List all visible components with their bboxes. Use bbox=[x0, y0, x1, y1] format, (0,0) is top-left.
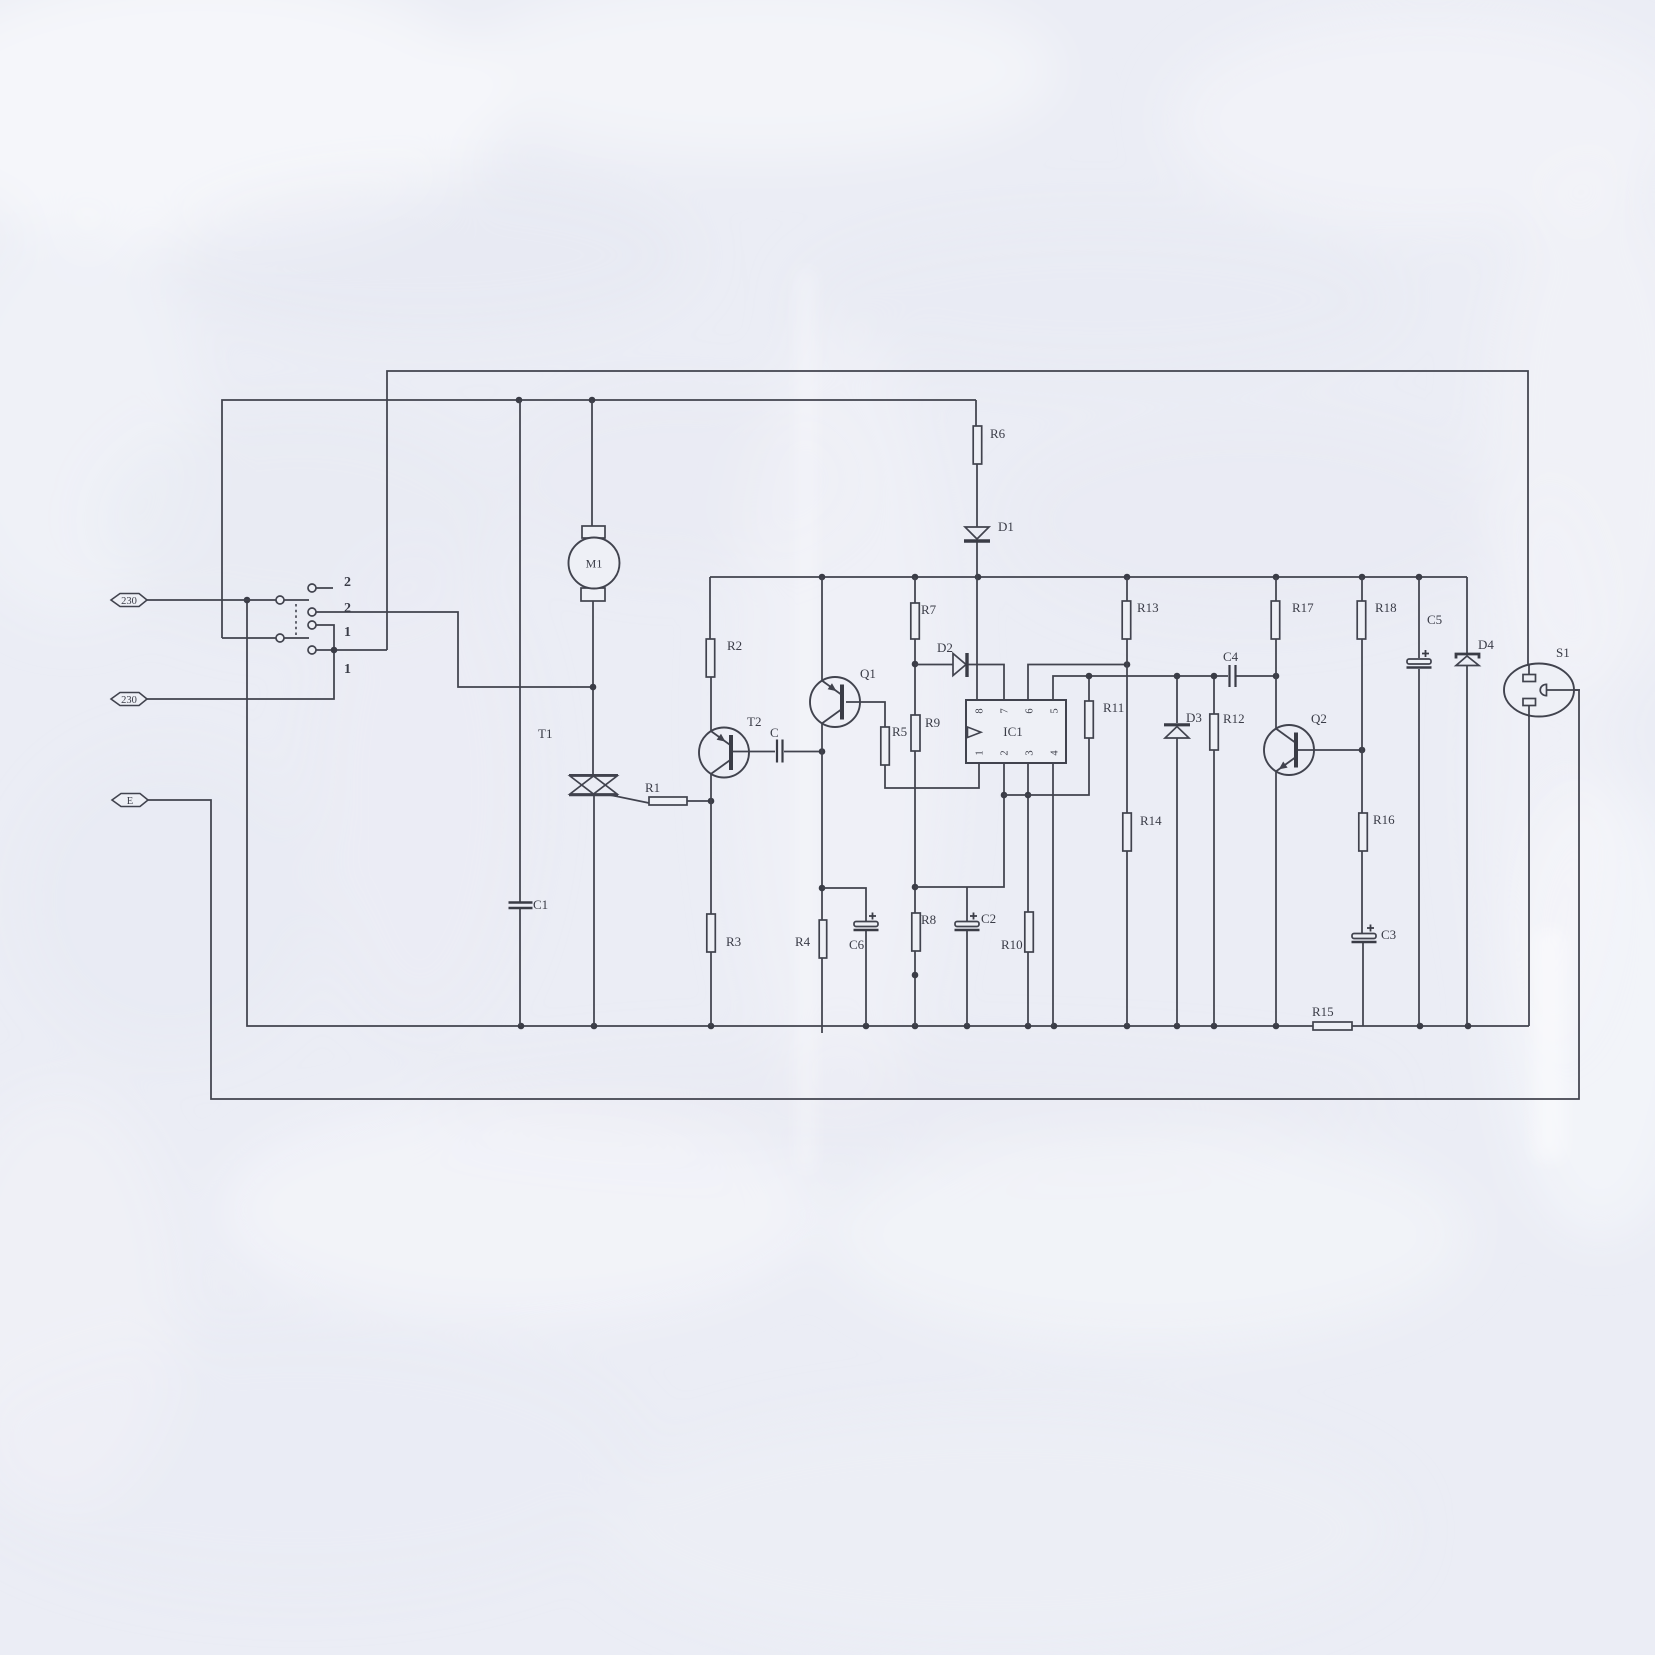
svg-text:7: 7 bbox=[1000, 708, 1011, 713]
svg-text:T2: T2 bbox=[747, 714, 761, 729]
svg-text:C4: C4 bbox=[1223, 649, 1239, 664]
svg-text:R7: R7 bbox=[921, 602, 937, 617]
svg-text:1: 1 bbox=[975, 750, 986, 755]
svg-text:230: 230 bbox=[121, 695, 137, 706]
svg-text:R18: R18 bbox=[1375, 600, 1397, 615]
svg-text:1: 1 bbox=[344, 662, 351, 677]
svg-text:E: E bbox=[127, 796, 133, 807]
svg-text:R8: R8 bbox=[921, 912, 936, 927]
svg-text:R13: R13 bbox=[1137, 600, 1159, 615]
svg-text:IC1: IC1 bbox=[1003, 724, 1023, 739]
svg-text:4: 4 bbox=[1050, 750, 1061, 756]
svg-text:R6: R6 bbox=[990, 426, 1006, 441]
svg-text:R3: R3 bbox=[726, 934, 741, 949]
svg-text:2: 2 bbox=[344, 575, 351, 590]
svg-text:D4: D4 bbox=[1478, 637, 1494, 652]
svg-text:R11: R11 bbox=[1103, 700, 1124, 715]
svg-text:R5: R5 bbox=[892, 724, 907, 739]
svg-text:R14: R14 bbox=[1140, 813, 1162, 828]
svg-text:5: 5 bbox=[1050, 708, 1061, 713]
svg-text:M1: M1 bbox=[586, 557, 603, 571]
svg-text:R4: R4 bbox=[795, 934, 811, 949]
svg-text:1: 1 bbox=[344, 625, 351, 640]
svg-text:230: 230 bbox=[121, 596, 137, 607]
svg-text:S1: S1 bbox=[1556, 645, 1570, 660]
svg-text:C: C bbox=[770, 725, 779, 740]
svg-text:2: 2 bbox=[344, 601, 351, 616]
svg-text:R15: R15 bbox=[1312, 1004, 1334, 1019]
svg-text:R10: R10 bbox=[1001, 937, 1023, 952]
svg-text:Q2: Q2 bbox=[1311, 711, 1327, 726]
svg-text:D2: D2 bbox=[937, 640, 953, 655]
svg-text:R9: R9 bbox=[925, 715, 940, 730]
svg-text:T1: T1 bbox=[538, 726, 552, 741]
svg-text:6: 6 bbox=[1025, 708, 1036, 713]
svg-text:R17: R17 bbox=[1292, 600, 1314, 615]
svg-text:C2: C2 bbox=[981, 911, 996, 926]
svg-text:Q1: Q1 bbox=[860, 666, 876, 681]
svg-text:8: 8 bbox=[975, 708, 986, 713]
svg-text:R2: R2 bbox=[727, 638, 742, 653]
svg-text:C3: C3 bbox=[1381, 927, 1396, 942]
svg-text:C1: C1 bbox=[533, 897, 548, 912]
svg-text:3: 3 bbox=[1025, 750, 1036, 755]
svg-text:R12: R12 bbox=[1223, 711, 1245, 726]
svg-text:R1: R1 bbox=[645, 780, 660, 795]
svg-text:D3: D3 bbox=[1186, 710, 1202, 725]
svg-text:D1: D1 bbox=[998, 519, 1014, 534]
svg-text:C6: C6 bbox=[849, 937, 865, 952]
svg-text:2: 2 bbox=[1000, 750, 1011, 755]
svg-text:C5: C5 bbox=[1427, 612, 1442, 627]
svg-text:R16: R16 bbox=[1373, 812, 1395, 827]
